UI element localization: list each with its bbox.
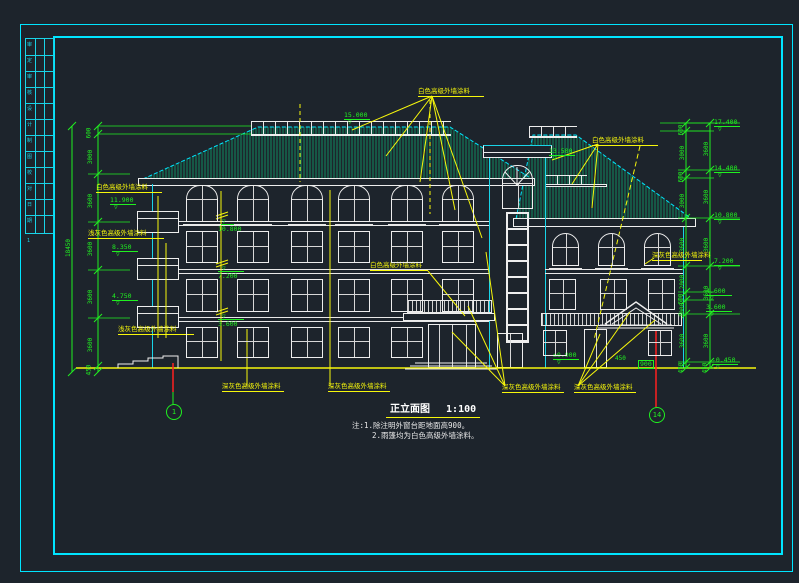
paint-annotation: 深灰色高级外墙涂料 [502,384,564,393]
arched-window [598,233,625,266]
leader [572,144,598,184]
window-sill [234,224,272,225]
elevation-marker: 13.500▽ [549,147,575,156]
fan-spoke [517,172,529,185]
elevation-marker: 4.750▽ [112,292,138,301]
title-block-text: 审 [27,41,32,48]
fan-spoke [505,172,517,185]
arched-window [391,185,423,222]
title-scale: 1:100 [446,404,476,415]
title-block-text: 制 [27,137,32,144]
title-block-text: 校 [27,169,32,176]
dimension-value: 3600 [704,190,710,204]
paint-annotation: 白色高级外墙涂料 [96,184,162,193]
paint-annotation: 浅灰色高级外墙涂料 [118,326,194,335]
arched-window [186,185,218,222]
arched-window [644,233,671,266]
dimension-value: 3600 [704,286,710,300]
axis-bubble: 1 [166,404,182,420]
dimension-value: 3000 [680,146,686,160]
window [186,279,218,312]
paint-annotation: 深灰色高级外墙涂料 [328,383,390,392]
window [338,279,370,312]
dimension-value: 600 [678,172,684,183]
elevation-marker: 15.000▽ [344,111,370,120]
arched-window [442,185,474,222]
left-steps [118,356,178,368]
dimension-value: 3600 [704,334,710,348]
dimension-value: 3000 [680,194,686,208]
window-sill [549,268,582,269]
window [291,231,323,263]
window [391,279,423,312]
elevation-marker: 14.400▽ [714,164,740,173]
window-sill [288,224,326,225]
window [543,330,567,356]
window-sill [183,224,221,225]
title-block-text: 设 [27,105,32,112]
dimension-value: 3600 [88,290,94,304]
paint-annotation: 白色高级外墙涂料 [418,88,484,97]
window-sill [439,224,477,225]
axis-bubble: 14 [649,407,665,423]
title-block-text: 定 [27,57,32,64]
window [186,327,218,358]
dimension-value: 3600 [704,238,710,252]
leader [452,332,505,386]
window [338,231,370,263]
elevation-marker: 7.200▽ [714,257,740,266]
window-sill [595,268,628,269]
elevation-marker: 8.350▽ [112,243,138,252]
paint-annotation: 深灰色高级外墙涂料 [222,383,284,392]
window [291,327,323,358]
title-block-text: 图 [27,153,32,160]
window [442,231,474,263]
arched-window [237,185,269,222]
cad-elevation-drawing: 正立面图 1:100 注:1.除注明外窗台距地面高900。 2.雨篷均为白色高级… [0,0,799,583]
leader [578,320,655,386]
window [391,327,423,358]
leader [592,144,598,208]
dimension-value: 1000 [680,303,686,317]
note-line-2: 2.雨篷均为白色高级外墙涂料。 [372,432,479,440]
window [600,279,627,310]
window [442,279,474,312]
arched-window [552,233,579,266]
dimension-value: 600 [678,125,684,136]
elevation-marker: 11.900▽ [110,196,136,205]
title-text: 正立面图 [390,404,430,415]
dimension-value: 3600 [704,142,710,156]
paint-annotation: 深灰色高级外墙涂料 [574,384,636,393]
elevation-marker: 17.400▽ [714,118,740,127]
elevation-marker: -0.450▽ [712,356,738,365]
dimension-value: 450 [702,363,708,374]
window [648,279,675,310]
title-block-footer: 1 [27,238,30,244]
dimension-value: 2000 [680,275,686,289]
drawing-title: 正立面图 1:100 [386,405,480,418]
dimension-value: 600 [86,128,92,139]
title-block-text: 核 [27,89,32,96]
window [291,279,323,312]
dimension-value: 450 [678,363,684,374]
paint-annotation: 白色高级外墙涂料 [370,262,428,271]
dimension-value: 3600 [88,194,94,208]
elevation-value: 450 [615,356,626,362]
dimension-value: 3000 [88,150,94,164]
paint-annotation: 白色高级外墙涂料 [592,137,658,146]
window-sill [335,224,373,225]
note-line-1: 注:1.除注明外窗台距地面高900。 [352,422,469,430]
title-block-text: 计 [27,121,32,128]
window [237,231,269,263]
dimension-value: 3600 [680,238,686,252]
title-block-text: 日 [27,201,32,208]
window [648,330,672,356]
title-block-text: 对 [27,185,32,192]
elevation-marker: 10.800▽ [714,211,740,220]
dimension-value: 3600 [88,242,94,256]
window-sill [641,268,674,269]
arched-window [291,185,323,222]
window [237,327,269,358]
arched-window [338,185,370,222]
elevation-marker: 3.600▽ [706,303,732,312]
dimension-value: 18450 [66,239,72,257]
paint-annotation: 浅灰色高级外墙涂料 [88,230,164,239]
window [549,279,576,310]
window [391,231,423,263]
window [186,231,218,263]
dimension-value: 3600 [680,334,686,348]
dimension-value: 3600 [88,338,94,352]
window [338,327,370,358]
title-block-text: 期 [27,217,32,224]
window [237,279,269,312]
dimension-value: 450 [86,365,92,376]
title-block-text: 审 [27,73,32,80]
leader [578,312,630,386]
elevation-value: 900 [638,360,654,369]
window-sill [388,224,426,225]
